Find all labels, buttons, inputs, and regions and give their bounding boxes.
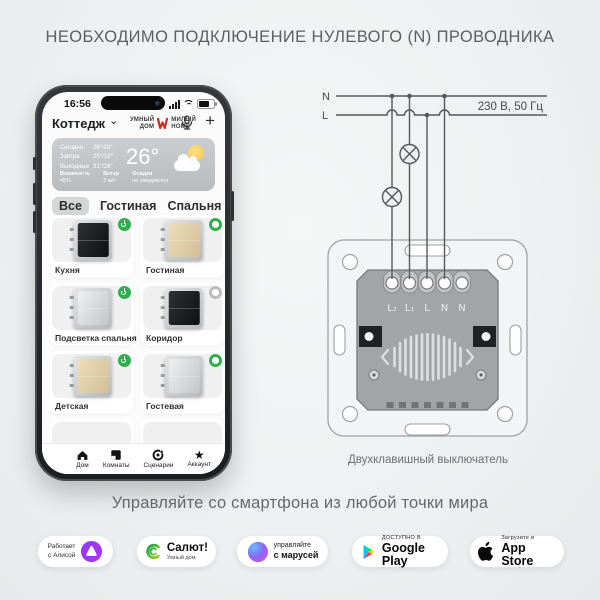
device-card-kids-room[interactable]: Детская [49,351,134,414]
switch-image [73,356,111,396]
wiring-diagram: L₂ L₁ L N N [310,85,560,480]
power-toggle-icon[interactable] [118,218,131,231]
device-card-living-room[interactable]: Гостиная [140,215,225,278]
status-time: 16:56 [64,98,91,110]
star-icon: ★ [194,450,205,460]
device-name: Коридор [146,333,183,343]
nav-item-rooms[interactable]: Комнаты [103,449,130,469]
n-line-label: N [322,91,330,103]
phone-mockup: 16:56 Коттедж ⌄ УМНЫЙДОМ [35,85,232,481]
weather-widget[interactable]: Сегодня26°/20° Завтра25°/18° Выходные31°… [52,138,215,191]
brand-mark-icon [157,117,168,130]
l-line-label: L [322,110,328,122]
camera-icon [155,101,160,106]
vent-slats [395,334,461,380]
device-name: Кухня [55,265,80,275]
weather-forecast-rows: Сегодня26°/20° Завтра25°/18° Выходные31°… [60,144,113,172]
apple-icon [478,540,496,563]
nav-item-home[interactable]: Дом [76,449,89,469]
power-button [231,191,234,221]
alice-icon [80,540,103,563]
scenarios-icon [152,449,164,461]
salut-icon [145,540,162,563]
device-grid: Кухня Гостиная Подсветка спальня Коридор [49,215,225,444]
product-infographic: НЕОБХОДИМО ПОДКЛЮЧЕНИЕ НУЛЕВОГО (N) ПРОВ… [0,0,600,600]
svg-text:L₂: L₂ [387,303,397,314]
sun-cloud-icon [174,145,206,171]
house-icon [76,449,89,461]
switch-image [164,288,202,328]
svg-text:L₁: L₁ [405,303,415,314]
device-card-partial[interactable] [140,419,225,444]
wifi-icon [183,100,194,109]
badge-google-play-text: ДОСТУПНО В Google Play [382,535,440,568]
signal-icon [169,100,180,109]
badge-marusia-text: управляйте с марусей [274,542,319,562]
svg-text:N: N [458,303,465,314]
microphone-icon[interactable] [180,115,194,135]
switch-image [73,220,111,260]
tab-bedroom[interactable]: Спальня [167,199,221,213]
bottom-nav: Дом Комнаты Сценарии [42,443,225,474]
current-temperature: 26° [126,144,159,170]
device-card-partial[interactable] [49,419,134,444]
room-tabs: Все Гостиная Спальня Коридор [52,197,225,215]
lamp-icon [383,145,420,207]
phone-screen: 16:56 Коттедж ⌄ УМНЫЙДОМ [42,92,225,474]
switch-image [73,288,111,328]
device-card-guest-room[interactable]: Гостевая [140,351,225,414]
badge-alice-text: Работает с Алисой [48,543,76,559]
chevron-down-icon[interactable]: ⌄ [109,114,118,127]
switch-image [164,356,202,396]
badge-alice[interactable]: Работает с Алисой [38,536,113,567]
marusia-icon [247,541,269,563]
battery-icon [197,99,215,109]
diagram-caption: Двухклавишный выключатель [348,454,508,466]
tab-all[interactable]: Все [52,197,89,215]
device-name: Подсветка спальня [55,333,137,343]
badge-app-store[interactable]: Загрузите в App Store [470,536,564,567]
badge-marusia[interactable]: управляйте с марусей [237,536,328,567]
badge-salut[interactable]: Салют! Умный дом [137,536,216,567]
device-name: Детская [55,401,89,411]
power-toggle-icon[interactable] [209,286,222,299]
power-toggle-icon[interactable] [118,286,131,299]
google-play-icon [360,541,377,563]
power-toggle-icon[interactable] [209,354,222,367]
badge-google-play[interactable]: ДОСТУПНО В Google Play [352,536,448,567]
volume-down-button [33,211,36,233]
tagline: Управляйте со смартфона из любой точки м… [0,494,600,513]
page-title: НЕОБХОДИМО ПОДКЛЮЧЕНИЕ НУЛЕВОГО (N) ПРОВ… [0,28,600,47]
home-selector[interactable]: Коттедж [52,116,105,131]
status-icons [169,100,215,109]
power-toggle-icon[interactable] [209,218,222,231]
svg-text:L: L [424,303,430,314]
power-toggle-icon[interactable] [118,354,131,367]
dynamic-island [101,96,165,110]
device-name: Гостиная [146,265,184,275]
device-card-bedroom-light[interactable]: Подсветка спальня [49,283,134,346]
nav-item-account[interactable]: ★ Аккаунт [187,450,211,468]
svg-text:N: N [441,303,448,314]
switch-image [164,220,202,260]
volume-up-button [33,183,36,205]
device-name: Гостевая [146,401,184,411]
nav-item-scenarios[interactable]: Сценарии [143,449,173,469]
voltage-label: 230 В, 50 Гц [478,101,544,113]
device-card-kitchen[interactable]: Кухня [49,215,134,278]
weather-details: Влажность45% Ветер3 м/с Осадкине ожидают… [60,171,168,186]
badge-app-store-text: Загрузите в App Store [501,535,556,568]
tab-living-room[interactable]: Гостиная [100,199,157,213]
mute-switch [33,157,36,170]
device-card-corridor[interactable]: Коридор [140,283,225,346]
brand-text-left: УМНЫЙДОМ [130,117,154,130]
add-device-button[interactable]: + [205,111,215,131]
rooms-icon [110,449,122,461]
badge-salut-text: Салют! Умный дом [167,541,208,562]
